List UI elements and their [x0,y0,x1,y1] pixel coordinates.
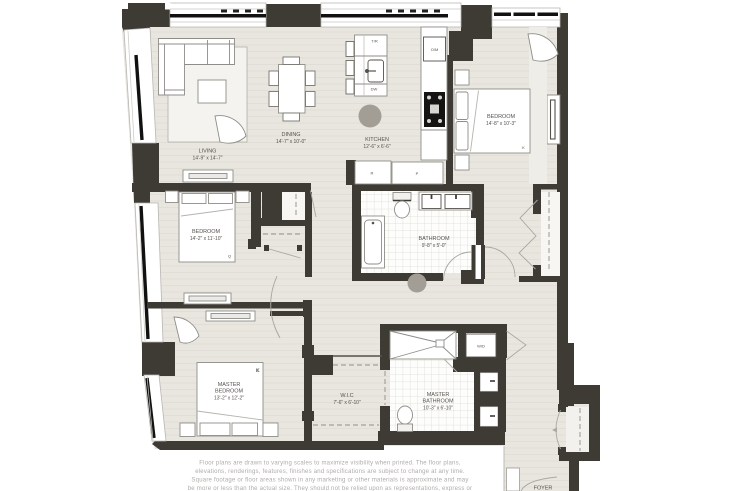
svg-text:W/D: W/D [477,344,485,349]
svg-text:MASTER: MASTER [427,392,450,398]
svg-text:FOYER: FOYER [534,486,553,491]
svg-text:K: K [522,145,525,150]
svg-text:BEDROOM: BEDROOM [487,114,516,120]
svg-text:BEDROOM: BEDROOM [215,389,244,395]
svg-text:R: R [371,171,374,176]
svg-text:Floor plans are drawn to varyi: Floor plans are drawn to varying scales … [199,461,461,467]
svg-text:DW: DW [371,87,378,92]
svg-text:BATHROOM: BATHROOM [419,236,450,242]
svg-text:9'-8" x 5'-0": 9'-8" x 5'-0" [422,243,447,249]
svg-text:BEDROOM: BEDROOM [192,229,221,235]
svg-text:13'-2" x 12'-2": 13'-2" x 12'-2" [214,396,244,402]
svg-text:10'-3" x 6'-10": 10'-3" x 6'-10" [423,406,453,412]
svg-text:KITCHEN: KITCHEN [365,137,389,143]
svg-text:14'-7" x 10'-0": 14'-7" x 10'-0" [276,139,306,145]
svg-text:be more or less than the actua: be more or less than the actual size. Th… [188,486,473,491]
svg-text:7'-6" x 6'-10": 7'-6" x 6'-10" [333,400,361,406]
svg-text:P: P [416,171,419,176]
svg-text:W.I.C: W.I.C [340,393,353,399]
svg-text:14'-2" x 11'-10": 14'-2" x 11'-10" [190,236,223,242]
svg-text:12'-6" x 6'-6": 12'-6" x 6'-6" [363,144,391,150]
svg-text:MASTER: MASTER [218,382,241,388]
svg-text:T/R: T/R [371,39,378,44]
svg-text:BATHROOM: BATHROOM [423,399,454,405]
svg-text:DINING: DINING [282,132,301,138]
svg-text:Q: Q [228,254,231,259]
svg-text:14'-9" x 14'-7": 14'-9" x 14'-7" [192,156,222,162]
svg-text:K: K [256,368,259,373]
svg-text:O/M: O/M [431,47,439,52]
svg-text:14'-8" x 10'-3": 14'-8" x 10'-3" [486,121,516,127]
svg-text:Square footage or floor areas: Square footage or floor areas shown in a… [191,478,468,484]
svg-text:LIVING: LIVING [199,149,217,155]
svg-text:elevations, renderings, featur: elevations, renderings, features, finish… [195,469,465,475]
